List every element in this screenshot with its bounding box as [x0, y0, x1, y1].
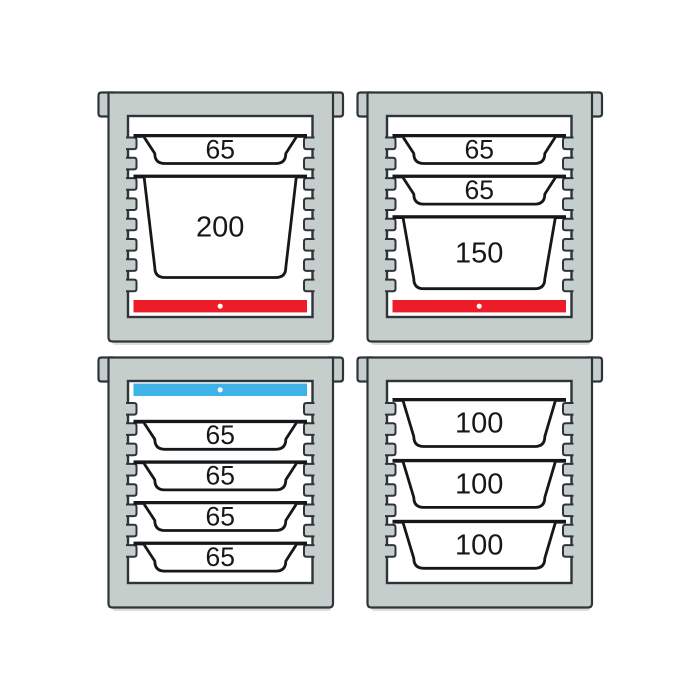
svg-text:100: 100 [455, 469, 503, 501]
svg-text:65: 65 [205, 134, 234, 164]
svg-text:150: 150 [455, 237, 503, 269]
svg-text:65: 65 [464, 175, 493, 205]
svg-text:100: 100 [455, 530, 503, 562]
svg-text:65: 65 [205, 461, 234, 491]
svg-text:65: 65 [205, 501, 234, 531]
svg-text:100: 100 [455, 408, 503, 440]
svg-text:65: 65 [205, 420, 234, 450]
svg-text:65: 65 [464, 134, 493, 164]
svg-text:65: 65 [205, 542, 234, 572]
svg-text:200: 200 [196, 212, 244, 244]
